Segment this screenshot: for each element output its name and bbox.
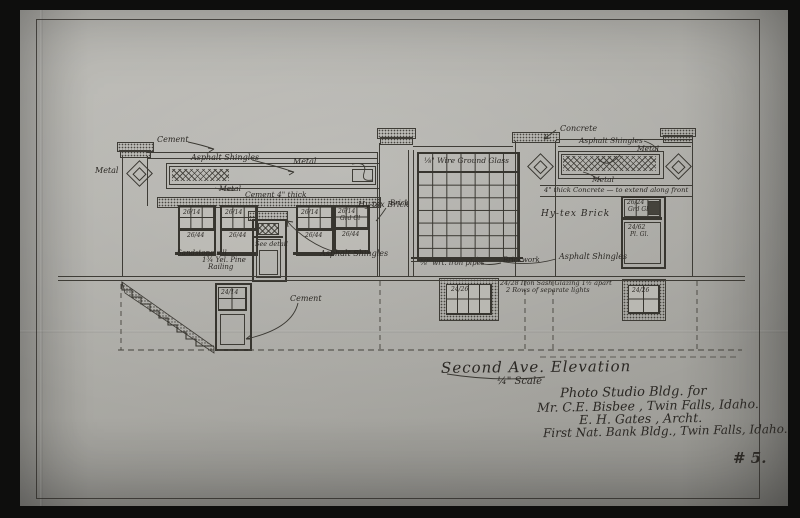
material-label-cement: Cement bbox=[290, 295, 322, 303]
leader-arrow bbox=[544, 130, 556, 139]
leader-arrow bbox=[252, 160, 294, 175]
leader-arrow bbox=[246, 303, 298, 339]
material-label-brickwork: Brickwork bbox=[503, 257, 540, 264]
leader-arrow bbox=[376, 208, 386, 221]
material-label-metal: Metal bbox=[592, 176, 614, 184]
material-label-shingles: Asphalt Shingles bbox=[579, 137, 643, 145]
material-label-cement-thickness: Cement 4" thick bbox=[245, 191, 307, 199]
material-label-cement: Cement bbox=[157, 136, 189, 144]
material-label-yel-pine-railing: Railing bbox=[208, 264, 233, 271]
material-label-metal: Metal bbox=[293, 158, 316, 166]
material-label-brick: Hy-tex Brick bbox=[541, 210, 610, 219]
material-label-metal: Metal bbox=[95, 167, 118, 175]
leader-arrow bbox=[287, 221, 336, 252]
material-label-shingles: Asphalt Shingles bbox=[559, 253, 627, 261]
material-label-wire-glass: ⅛" Wire Ground Glass bbox=[424, 157, 509, 165]
material-label-concrete: Concrete bbox=[560, 125, 597, 133]
material-label-brick: Brick bbox=[390, 200, 409, 207]
linework-overlay bbox=[0, 0, 800, 518]
note-iron-sash: 2 Rows of separate lights bbox=[506, 287, 590, 294]
drawing-title: Second Ave. Elevation bbox=[441, 359, 631, 376]
leader-arrow bbox=[188, 142, 214, 152]
photograph-of-drawing: 26/14 26/44 26/14 26/44 26/14 26/44 26/1… bbox=[0, 0, 800, 518]
note-see-detail: See detail bbox=[255, 241, 288, 248]
leader-curl bbox=[352, 163, 373, 180]
sheet-number: # 5. bbox=[733, 451, 766, 466]
material-label-metal: Metal bbox=[219, 185, 241, 193]
drawing-scale: ¼" Scale bbox=[497, 377, 542, 387]
material-label-metal: Metal bbox=[637, 145, 659, 153]
material-label-shingles: Asphalt Shingles bbox=[191, 154, 259, 162]
note-concrete-band: 4" thick Concrete — to extend along fron… bbox=[544, 187, 688, 194]
leader-arrow bbox=[598, 155, 620, 163]
note-iron-pipes: ⅜" wrt. iron pipes bbox=[420, 260, 484, 267]
material-label-shingles: Asphalt Shingles bbox=[320, 250, 388, 258]
